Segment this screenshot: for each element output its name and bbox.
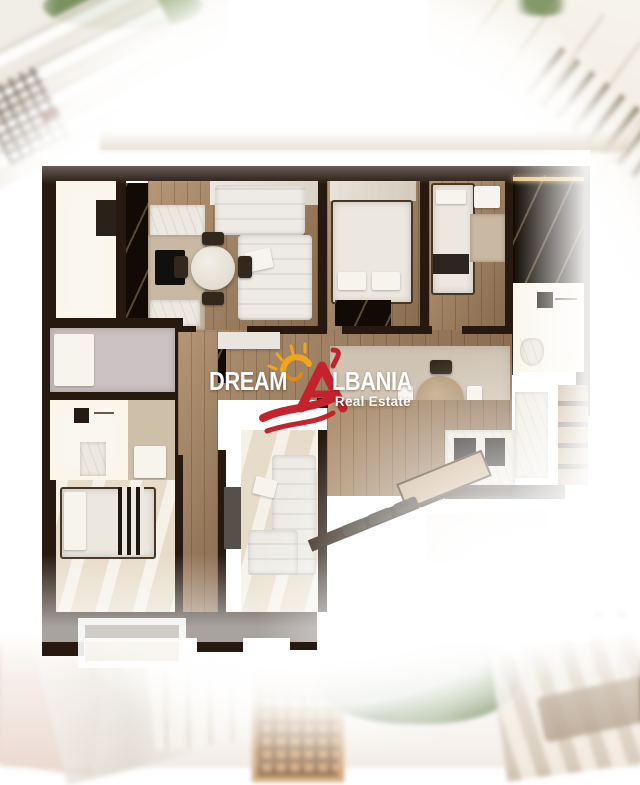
pillow [338,272,366,290]
tv-panel [224,487,241,549]
washing-machine [134,446,166,478]
bed-runner [433,254,469,274]
wall [175,455,183,612]
logo-text-dream: DREAM [209,366,287,397]
fridge-tower [515,392,548,478]
pouf [474,186,500,208]
dining-table [191,246,235,290]
pillow [372,272,400,290]
terrace-outline [419,503,555,570]
bathroom-mirror [537,292,553,308]
pillow [64,492,86,550]
pillow [436,190,466,204]
bed-canopy-slats [118,487,144,555]
window-curtains [330,181,416,201]
chair [202,232,224,245]
balcony-panel [96,200,116,236]
pillow [54,334,94,386]
towel-rail [555,298,577,300]
appliance [485,438,505,466]
cubby-shelf [558,385,588,485]
logo-tagline: Real Estate [335,394,411,409]
chaise-lounge [215,185,305,235]
chair [174,256,188,278]
wall-post [290,612,317,650]
wall-post [197,612,243,652]
wall-hall [342,326,432,334]
chair [202,292,224,305]
wall-hall [462,326,512,334]
balcony-outline-bottom [78,618,186,668]
logo-text-lbania: LBANIA [332,366,412,397]
towel-rail [94,412,114,414]
led-strip [513,177,584,181]
kitchen-counter-top [150,205,205,239]
wall-balcony-divider [116,181,126,330]
kitchen-tall-cabinets [126,183,148,330]
walk-in-wardrobe [513,175,584,283]
wall-bath-left [42,392,182,400]
real-estate-floorplan-promo: DREAM LBANIA Real Estate [0,0,640,768]
wall [318,430,327,612]
bedroom1-dresser [335,300,391,326]
bedroom2-wardrobe [470,214,505,262]
sofa-chaise [248,530,298,575]
chair [238,256,252,278]
faded-plan-top-edge [100,130,630,152]
vanity-sink [80,442,106,476]
wall-bedroom1 [318,181,327,330]
bathroom-mirror [74,408,89,423]
wall-mid-left [42,318,182,328]
wall-bedroom2 [420,181,429,330]
dream-albania-logo: DREAM LBANIA Real Estate [205,336,437,446]
toilet [520,338,544,366]
